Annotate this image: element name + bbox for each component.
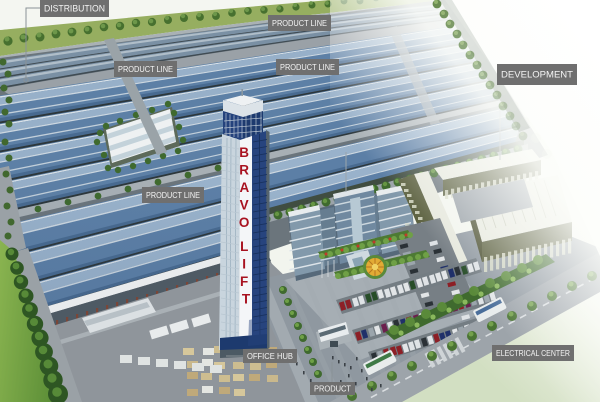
svg-text:PRODUCT LINE: PRODUCT LINE <box>280 63 335 72</box>
svg-text:DISTRIBUTION: DISTRIBUTION <box>44 4 105 14</box>
svg-text:PRODUCT LINE: PRODUCT LINE <box>272 19 327 28</box>
svg-text:B R A V O L I F T: B R A V O L I F T <box>239 145 253 307</box>
svg-text:OFFICE HUB: OFFICE HUB <box>247 352 293 361</box>
svg-text:DEVELOPMENT: DEVELOPMENT <box>501 70 574 80</box>
svg-text:PRODUCT LINE: PRODUCT LINE <box>118 65 173 74</box>
svg-text:PRODUCT: PRODUCT <box>314 385 351 394</box>
svg-text:ELECTRICAL CENTER: ELECTRICAL CENTER <box>496 349 570 358</box>
svg-text:PRODUCT LINE: PRODUCT LINE <box>146 191 200 200</box>
